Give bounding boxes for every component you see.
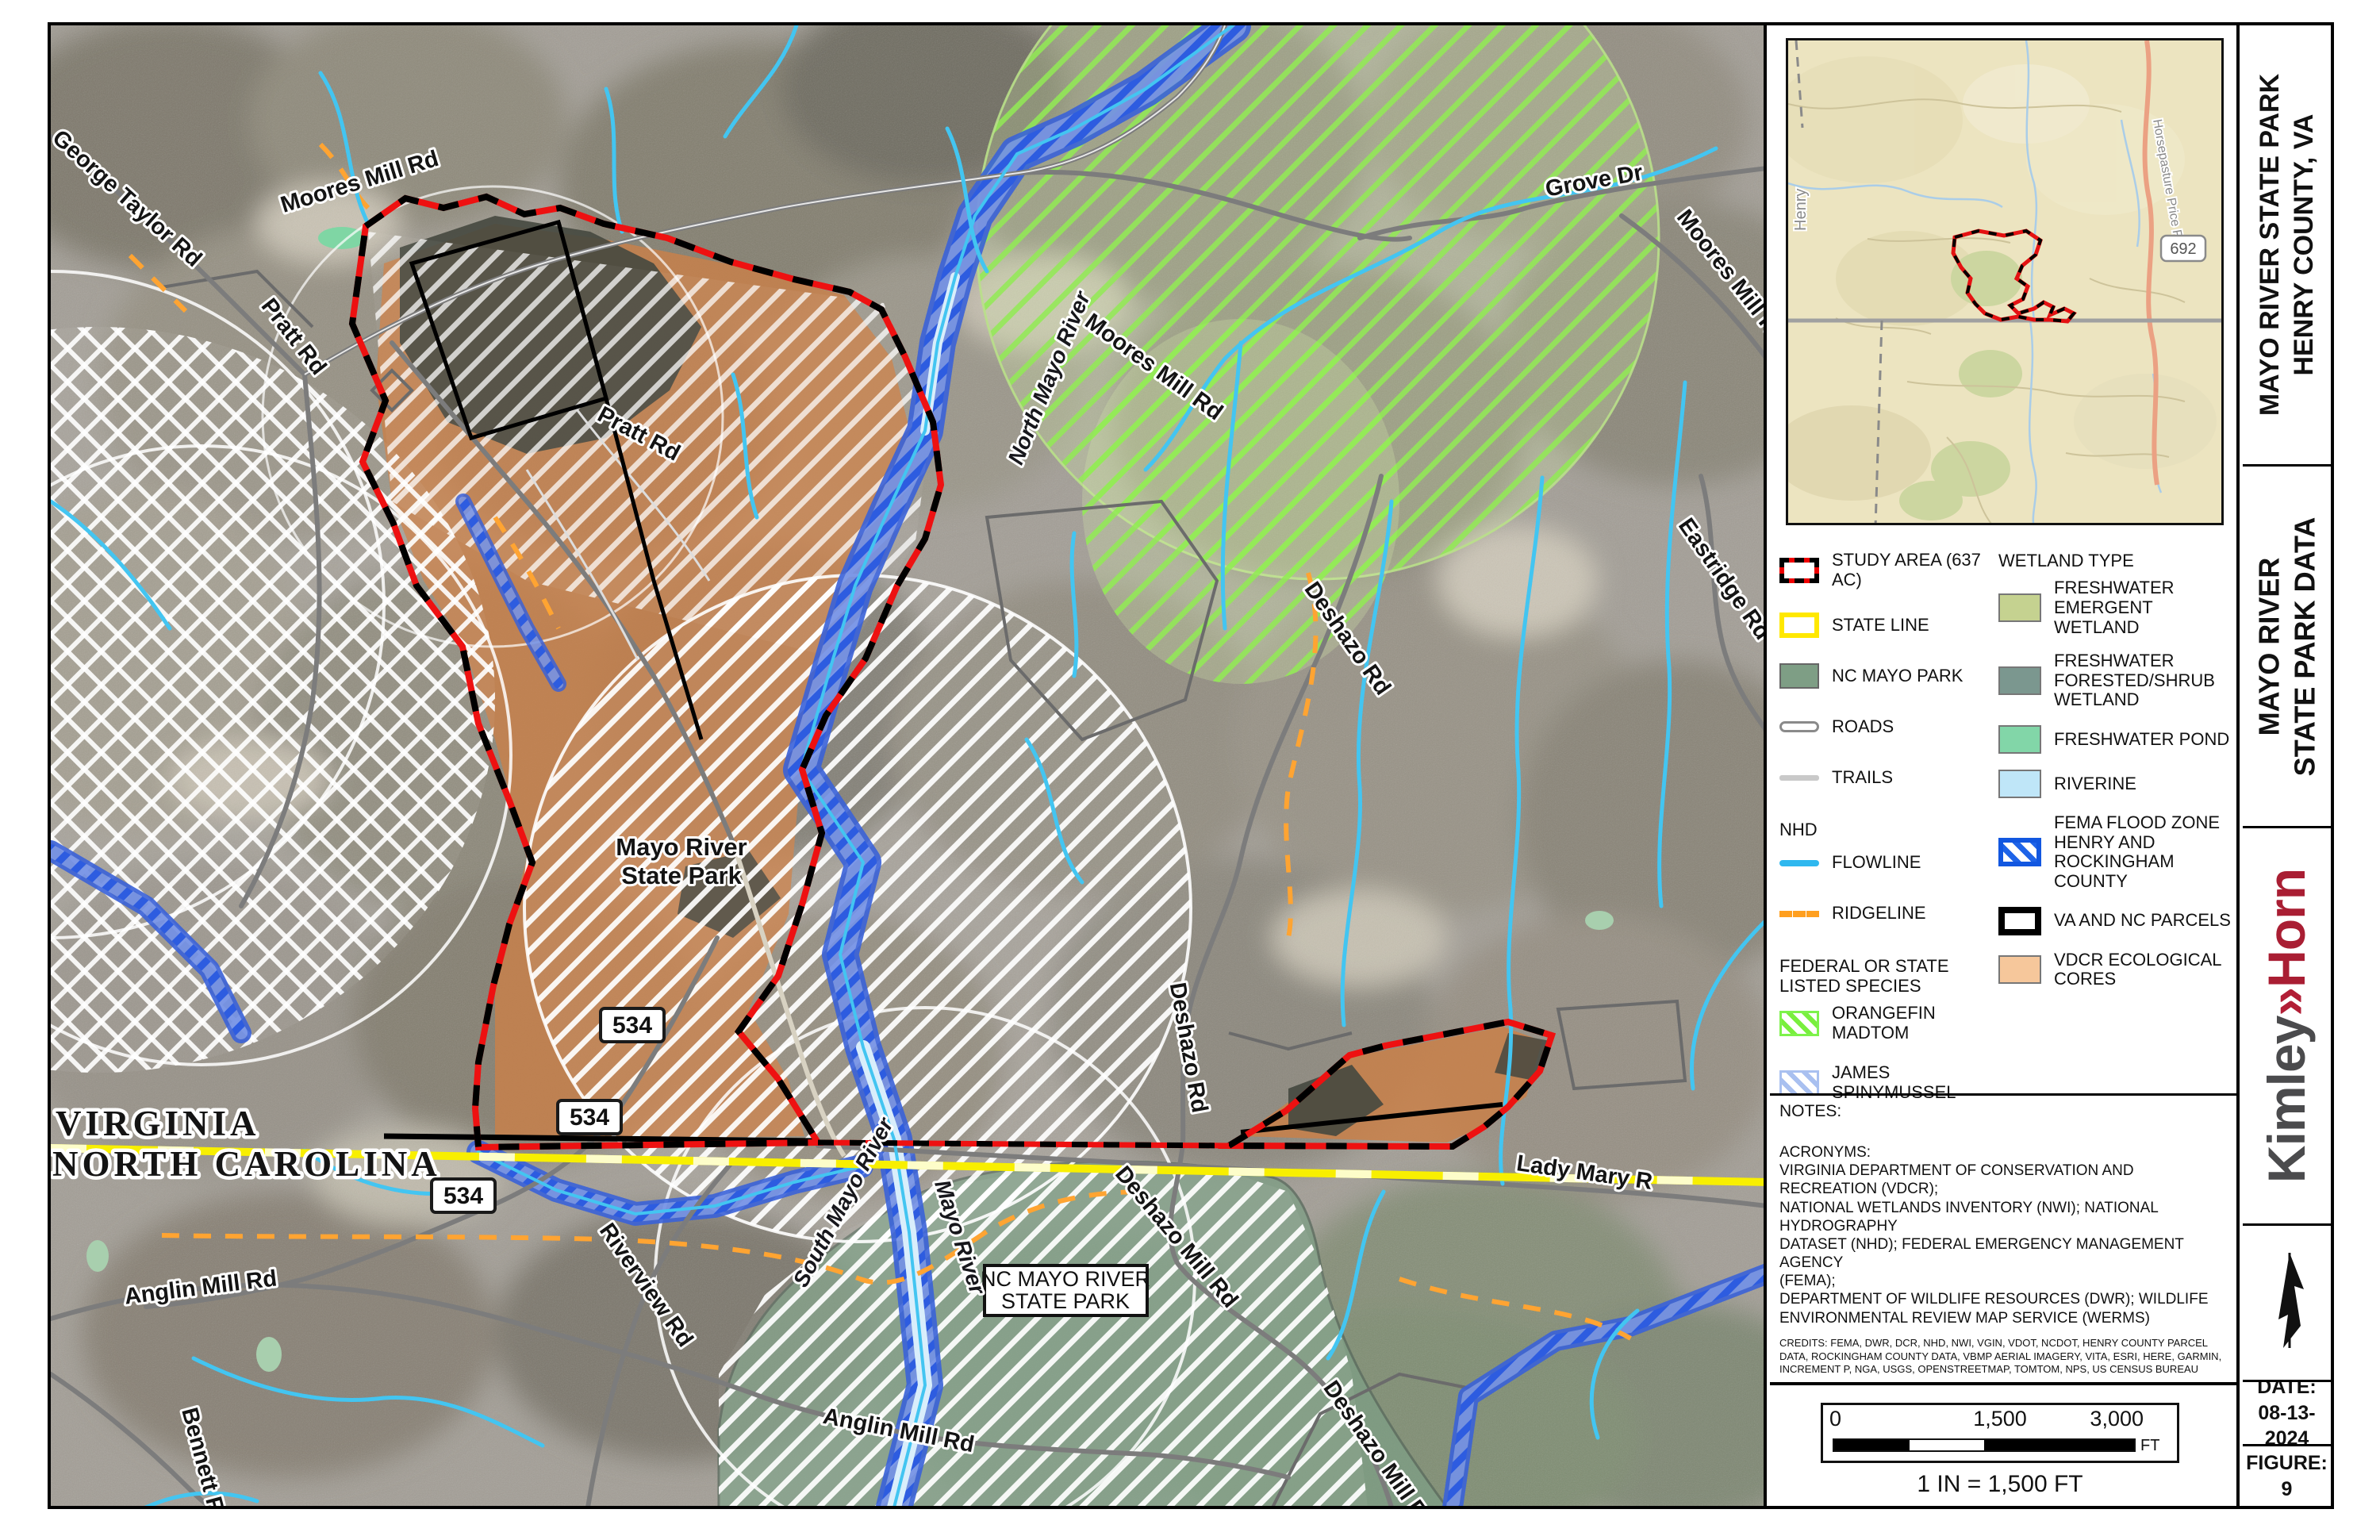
nc-park-label-box: NC MAYO RIVER STATE PARK	[981, 1265, 1150, 1315]
kimley-horn-logo: Kimley»Horn	[2243, 828, 2331, 1226]
side-panel: Henry Horsepasture Price Rd 692 STUDY AR…	[1770, 25, 2240, 1506]
note-line: ACRONYMS:	[1779, 1143, 2230, 1162]
legend-swatch-parcels-icon	[1998, 907, 2041, 935]
main-map-canvas: NC MAYO RIVER STATE PARK George Taylor R…	[51, 25, 1767, 1506]
legend-swatch-ncmayo-icon	[1779, 663, 1819, 689]
inset-locator-map: Henry Horsepasture Price Rd 692	[1786, 38, 2224, 525]
legend-swatch-vdcr-icon	[1998, 955, 2041, 984]
subtitle-line1: MAYO RIVER	[2253, 557, 2286, 735]
date-label: DATE:	[2257, 1382, 2317, 1398]
legend-label: RIVERINE	[2054, 774, 2136, 794]
state-name-label: VIRGINIA	[56, 1104, 260, 1143]
scale-unit: FT	[2140, 1437, 2159, 1455]
legend-swatch-riverine-icon	[1998, 770, 2041, 798]
legend-label: FLOWLINE	[1832, 853, 1921, 873]
nc-park-label-line2: STATE PARK	[1001, 1289, 1130, 1313]
legend-item: RIDGELINE	[1779, 899, 1992, 929]
note-line: (FEMA);	[1779, 1272, 2230, 1290]
legend-swatch-spiny-icon	[1779, 1070, 1819, 1096]
legend-label: NC MAYO PARK	[1832, 666, 1963, 686]
main-map: NC MAYO RIVER STATE PARK George Taylor R…	[51, 25, 1767, 1506]
note-line: DEPARTMENT OF WILDLIFE RESOURCES (DWR); …	[1779, 1290, 2230, 1308]
scale-box: 0 1,500 3,000 FT	[1821, 1403, 2179, 1463]
legend-label: VDCR ECOLOGICAL CORES	[2054, 950, 2236, 989]
legend-swatch-ridgeline-icon	[1779, 911, 1819, 917]
figure-label: FIGURE:	[2246, 1452, 2328, 1474]
route-shield: 534	[432, 1179, 495, 1212]
svg-text:534: 534	[443, 1183, 483, 1209]
legend-section-header: NHD	[1779, 820, 1992, 839]
map-label: Mayo River	[616, 833, 747, 861]
map-sheet: NC MAYO RIVER STATE PARK George Taylor R…	[48, 22, 2334, 1509]
inset-route-shield: 692	[2161, 236, 2205, 261]
legend-swatch-pond-icon	[1998, 725, 2041, 754]
notes-header: NOTES:	[1779, 1102, 2230, 1121]
notes-lines: ACRONYMS:VIRGINIA DEPARTMENT OF CONSERVA…	[1779, 1143, 2230, 1327]
legend-swatch-state-icon	[1779, 613, 1819, 638]
svg-text:692: 692	[2170, 240, 2196, 258]
legend-label: FRESHWATER EMERGENT WETLAND	[2054, 578, 2236, 637]
legend-label: VA AND NC PARCELS	[2054, 911, 2231, 931]
legend-swatch-forested-icon	[1998, 666, 2041, 695]
subtitle-block: MAYO RIVER STATE PARK DATA	[2243, 467, 2331, 828]
subtitle-line2: STATE PARK DATA	[2289, 517, 2321, 776]
pond	[256, 1337, 282, 1372]
inset-county-label: Henry	[1792, 189, 1810, 231]
legend-item: VA AND NC PARCELS	[1998, 906, 2236, 936]
route-shield: 534	[558, 1100, 621, 1134]
figure-value: 9	[2282, 1478, 2293, 1500]
legend-item: STATE LINE	[1779, 610, 1992, 640]
legend-swatch-trails-icon	[1779, 775, 1819, 781]
legend-label: RIDGELINE	[1832, 904, 1926, 924]
legend-label: FRESHWATER FORESTED/SHRUB WETLAND	[2054, 651, 2236, 710]
logo-horn: Horn	[2258, 869, 2317, 988]
legend-right-column: WETLAND TYPE FRESHWATER EMERGENT WETLAND…	[1998, 551, 2236, 1004]
legend-section-header: FEDERAL OR STATE LISTED SPECIES	[1779, 956, 1992, 997]
figure-box: FIGURE: 9	[2243, 1446, 2331, 1506]
legend-item: VDCR ECOLOGICAL CORES	[1998, 950, 2236, 989]
legend-item: NC MAYO PARK	[1779, 661, 1992, 691]
north-arrow-icon	[2251, 1243, 2323, 1362]
legend-item: TRAILS	[1779, 762, 1992, 793]
route-shield: 534	[601, 1008, 664, 1042]
legend: STUDY AREA (637 AC)STATE LINENC MAYO PAR…	[1770, 543, 2240, 1093]
legend-item: FLOWLINE	[1779, 848, 1992, 878]
note-line: VIRGINIA DEPARTMENT OF CONSERVATION AND …	[1779, 1162, 2230, 1198]
legend-item: ROADS	[1779, 712, 1992, 742]
legend-item: STUDY AREA (637 AC)	[1779, 551, 1992, 590]
title-line2: HENRY COUNTY, VA	[2289, 114, 2319, 376]
legend-swatch-study-icon	[1779, 558, 1819, 583]
legend-label: FEMA FLOOD ZONE HENRY AND ROCKINGHAM COU…	[2054, 813, 2236, 892]
nc-park-label-line1: NC MAYO RIVER	[981, 1267, 1150, 1291]
date-box: DATE: 08-13-2024	[2243, 1382, 2331, 1446]
legend-label: TRAILS	[1832, 768, 1893, 788]
legend-label: FRESHWATER POND	[2054, 730, 2229, 750]
legend-swatch-fema-icon	[1998, 838, 2041, 866]
legend-item: FEMA FLOOD ZONE HENRY AND ROCKINGHAM COU…	[1998, 813, 2236, 892]
state-name-label: NORTH CAROLINA	[52, 1144, 441, 1184]
legend-item: FRESHWATER EMERGENT WETLAND	[1998, 578, 2236, 637]
title-block: MAYO RIVER STATE PARK HENRY COUNTY, VA	[2243, 25, 2331, 467]
logo-chevron-icon: »	[2258, 988, 2317, 1016]
svg-text:534: 534	[612, 1012, 652, 1039]
legend-label: ROADS	[1832, 717, 1894, 737]
scale-area: 0 1,500 3,000 FT 1 IN = 1,500 FT	[1770, 1382, 2240, 1506]
scale-tick-3000: 3,000	[2090, 1407, 2144, 1431]
legend-label: STUDY AREA (637 AC)	[1832, 551, 1992, 590]
legend-item: RIVERINE	[1998, 769, 2236, 799]
note-line: DATASET (NHD); FEDERAL EMERGENCY MANAGEM…	[1779, 1235, 2230, 1272]
legend-label: ORANGEFIN MADTOM	[1832, 1004, 1992, 1043]
title-line1: MAYO RIVER STATE PARK	[2255, 74, 2285, 416]
notes-box: NOTES: ACRONYMS:VIRGINIA DEPARTMENT OF C…	[1770, 1093, 2240, 1382]
logo-kimley: Kimley	[2258, 1016, 2317, 1183]
scale-tick-0: 0	[1829, 1407, 1841, 1431]
legend-swatch-flowline-icon	[1779, 860, 1819, 866]
svg-text:534: 534	[570, 1104, 609, 1131]
legend-label: STATE LINE	[1832, 616, 1929, 636]
legend-swatch-roads-icon	[1779, 721, 1819, 732]
north-arrow-box	[2243, 1226, 2331, 1382]
map-label: State Park	[621, 862, 742, 889]
legend-left-column: STUDY AREA (637 AC)STATE LINENC MAYO PAR…	[1779, 551, 1992, 1123]
wetland-type-header: WETLAND TYPE	[1998, 551, 2236, 570]
pond	[86, 1240, 109, 1272]
date-value: 08-13-2024	[2258, 1402, 2315, 1446]
credits: CREDITS: FEMA, DWR, DCR, NHD, NWI, VGIN,…	[1779, 1337, 2228, 1376]
scale-tick-1500: 1,500	[1973, 1407, 2027, 1431]
pond	[1585, 911, 1614, 930]
wetland-type-list: FRESHWATER EMERGENT WETLANDFRESHWATER FO…	[1998, 578, 2236, 989]
legend-item: FRESHWATER FORESTED/SHRUB WETLAND	[1998, 651, 2236, 710]
scale-equation: 1 IN = 1,500 FT	[1821, 1471, 2179, 1498]
title-column: MAYO RIVER STATE PARK HENRY COUNTY, VA M…	[2243, 25, 2331, 1506]
note-line: NATIONAL WETLANDS INVENTORY (NWI); NATIO…	[1779, 1199, 2230, 1235]
legend-item: ORANGEFIN MADTOM	[1779, 1004, 1992, 1043]
legend-item: FRESHWATER POND	[1998, 724, 2236, 755]
scale-bar	[1833, 1438, 2136, 1452]
note-line: ENVIRONMENTAL REVIEW MAP SERVICE (WERMS)	[1779, 1309, 2230, 1327]
legend-swatch-emergent-icon	[1998, 593, 2041, 622]
legend-swatch-madtom-icon	[1779, 1011, 1819, 1036]
